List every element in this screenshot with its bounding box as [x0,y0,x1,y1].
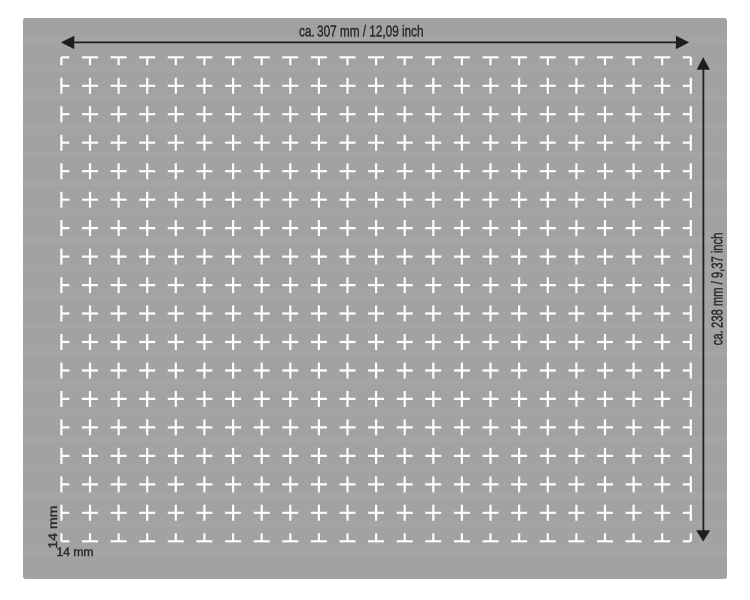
svg-text:ca. 307 mm / 12,09 inch: ca. 307 mm / 12,09 inch [299,24,424,41]
svg-text:14 mm: 14 mm [48,506,60,549]
svg-text:14 mm: 14 mm [57,547,94,559]
svg-text:ca. 238 mm / 9,37 inch: ca. 238 mm / 9,37 inch [710,233,727,346]
